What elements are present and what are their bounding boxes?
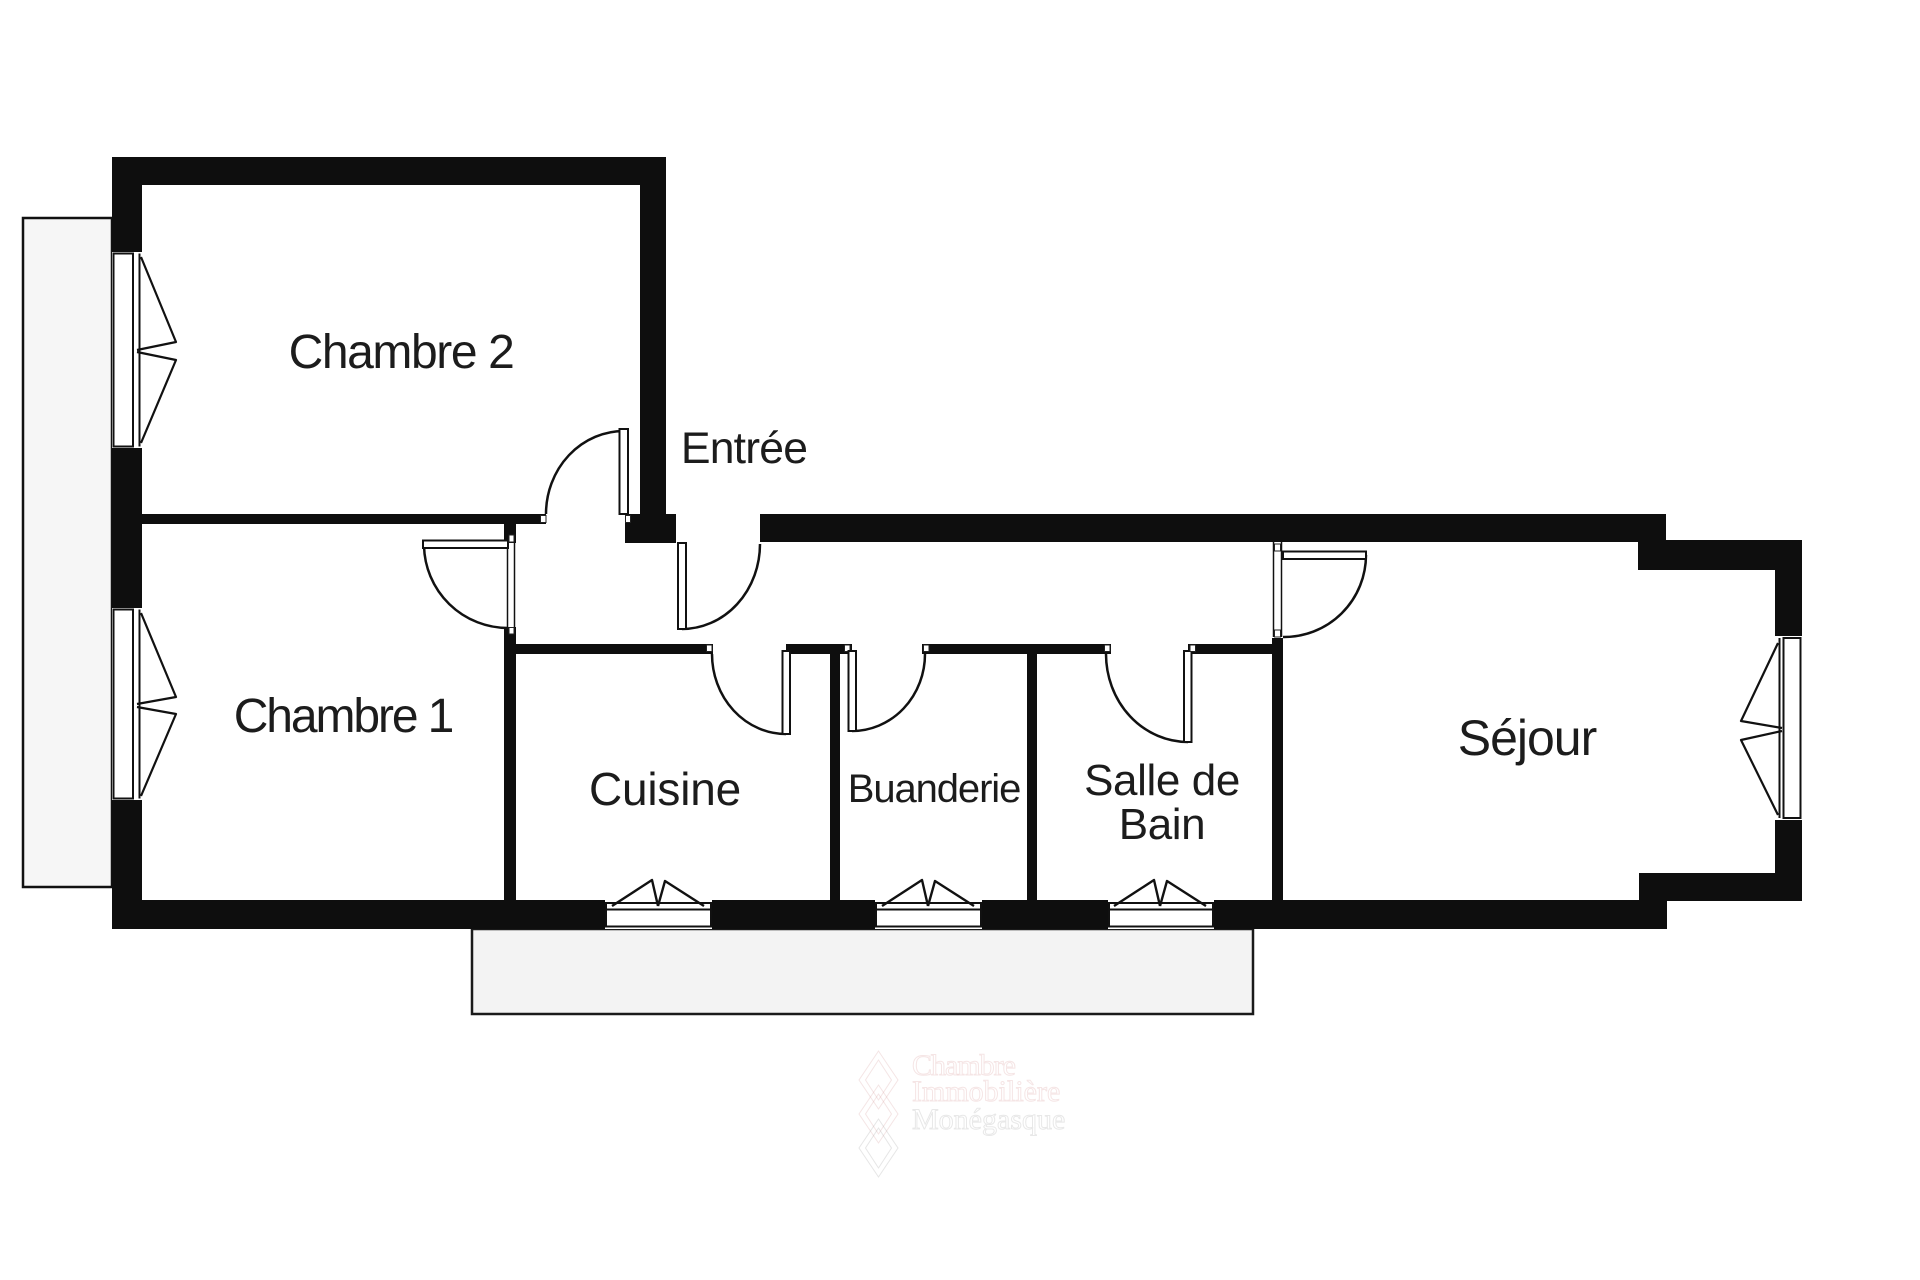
svg-text:Cuisine: Cuisine bbox=[589, 763, 741, 815]
svg-text:Entrée: Entrée bbox=[681, 424, 807, 473]
svg-text:Bain: Bain bbox=[1119, 800, 1205, 849]
svg-text:Buanderie: Buanderie bbox=[848, 767, 1020, 811]
svg-text:Chambre 1: Chambre 1 bbox=[234, 690, 453, 743]
svg-text:Séjour: Séjour bbox=[1458, 710, 1597, 766]
svg-text:Monégasque: Monégasque bbox=[912, 1103, 1065, 1136]
svg-text:Salle de: Salle de bbox=[1084, 756, 1240, 805]
svg-text:Chambre 2: Chambre 2 bbox=[289, 326, 514, 379]
